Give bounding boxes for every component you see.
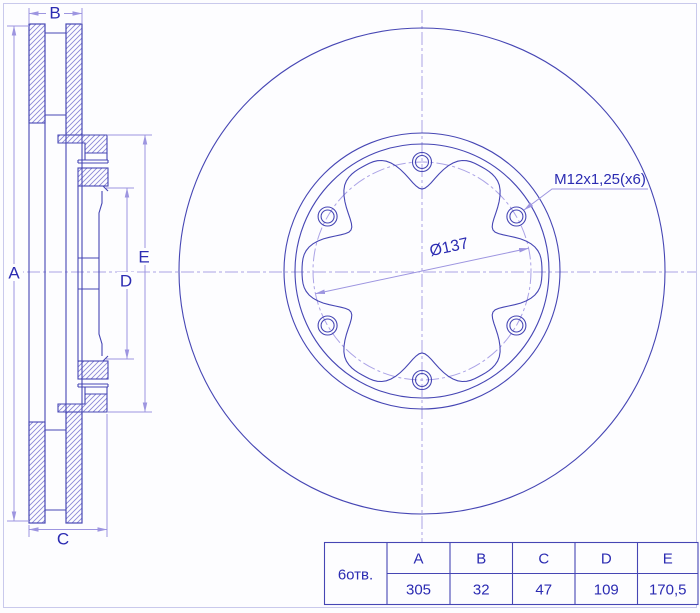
table-header-c: C: [538, 551, 549, 568]
spec-table: 6отв. A B C D E 305 32 47 109 170,5: [325, 543, 699, 605]
cheek-left-bottom-section: [29, 422, 45, 523]
thread-callout-label: M12x1,25(x6): [554, 171, 646, 188]
table-value-a: 305: [406, 582, 431, 599]
dim-e-label: E: [138, 248, 149, 267]
table-row-label: 6отв.: [338, 567, 373, 584]
dim-a-label: A: [8, 264, 20, 283]
table-header-b: B: [476, 551, 486, 568]
spec-table-grid: [325, 543, 699, 605]
table-value-b: 32: [473, 582, 490, 599]
table-header-e: E: [663, 551, 673, 568]
brake-disc-drawing: A B C D E Ø: [0, 0, 700, 613]
table-value-c: 47: [535, 582, 552, 599]
dim-b-label: B: [49, 4, 60, 23]
cheek-left-top-section: [29, 24, 45, 123]
dim-c-label: C: [57, 530, 69, 549]
cheek-right-top-section: [66, 24, 82, 135]
table-header-d: D: [601, 551, 612, 568]
dim-d-label: D: [120, 272, 132, 291]
drawing-canvas: A B C D E Ø: [0, 0, 700, 613]
table-header-a: A: [413, 551, 423, 568]
cheek-right-bottom-section: [66, 412, 82, 523]
table-value-d: 109: [594, 582, 619, 599]
table-value-e: 170,5: [649, 582, 687, 599]
